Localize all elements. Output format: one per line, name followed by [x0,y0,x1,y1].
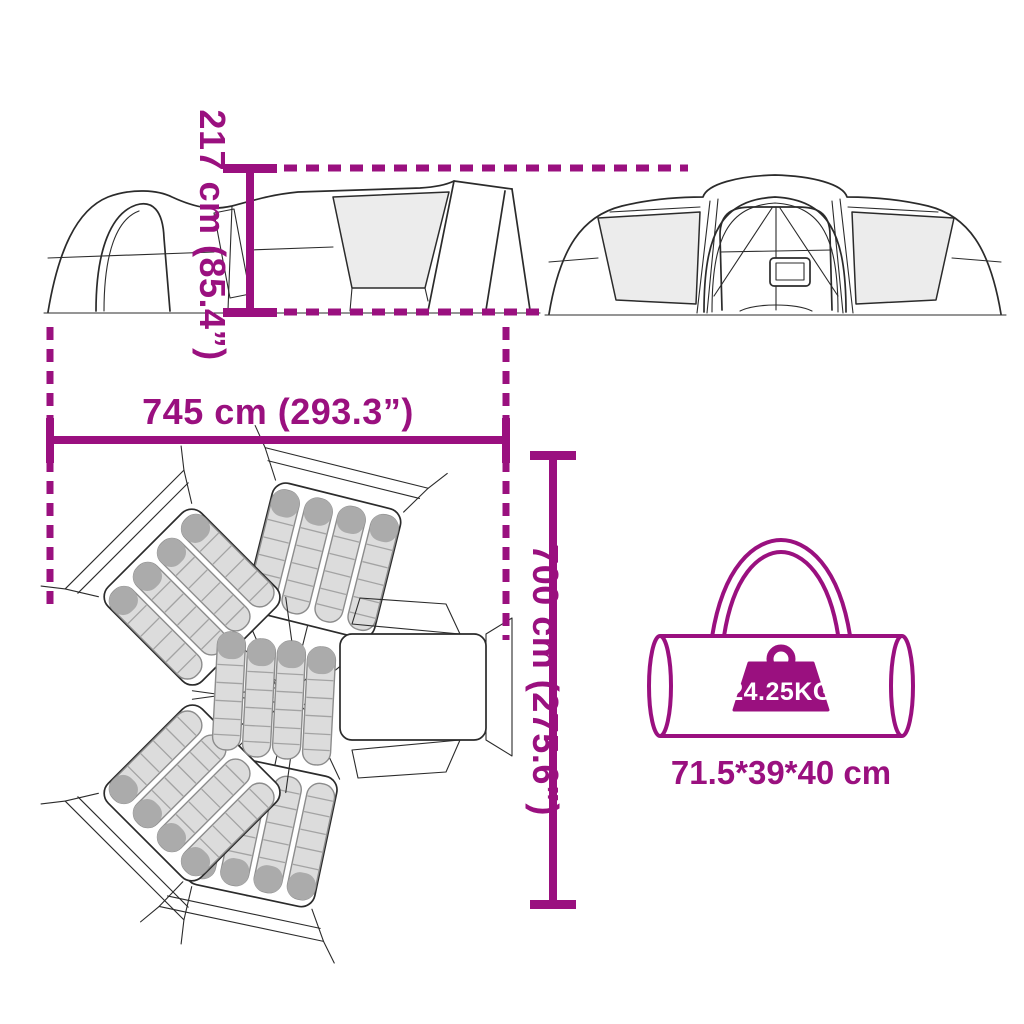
bag-size-label: 71.5*39*40 cm [671,754,891,791]
tent-front-view [545,175,1006,315]
tent-floor-plan [41,426,512,963]
product-diagram: 217 cm (85.4”) 745 cm (293.3”) 700 cm (2… [0,0,1024,1024]
carry-bag: 24.25KG 71.5*39*40 cm [649,540,913,791]
length-dimension-label: 745 cm (293.3”) [142,391,414,432]
tent-side-view [44,181,540,313]
center-sleeping-bags [212,631,336,765]
bag-weight-label: 24.25KG [729,678,833,706]
diagram-canvas: 217 cm (85.4”) 745 cm (293.3”) 700 cm (2… [0,0,1024,1024]
porch [340,598,512,778]
height-dimension-label: 217 cm (85.4”) [192,109,233,360]
depth-dimension: 700 cm (275.6”) [525,451,576,909]
depth-dimension-label: 700 cm (275.6”) [525,544,566,816]
